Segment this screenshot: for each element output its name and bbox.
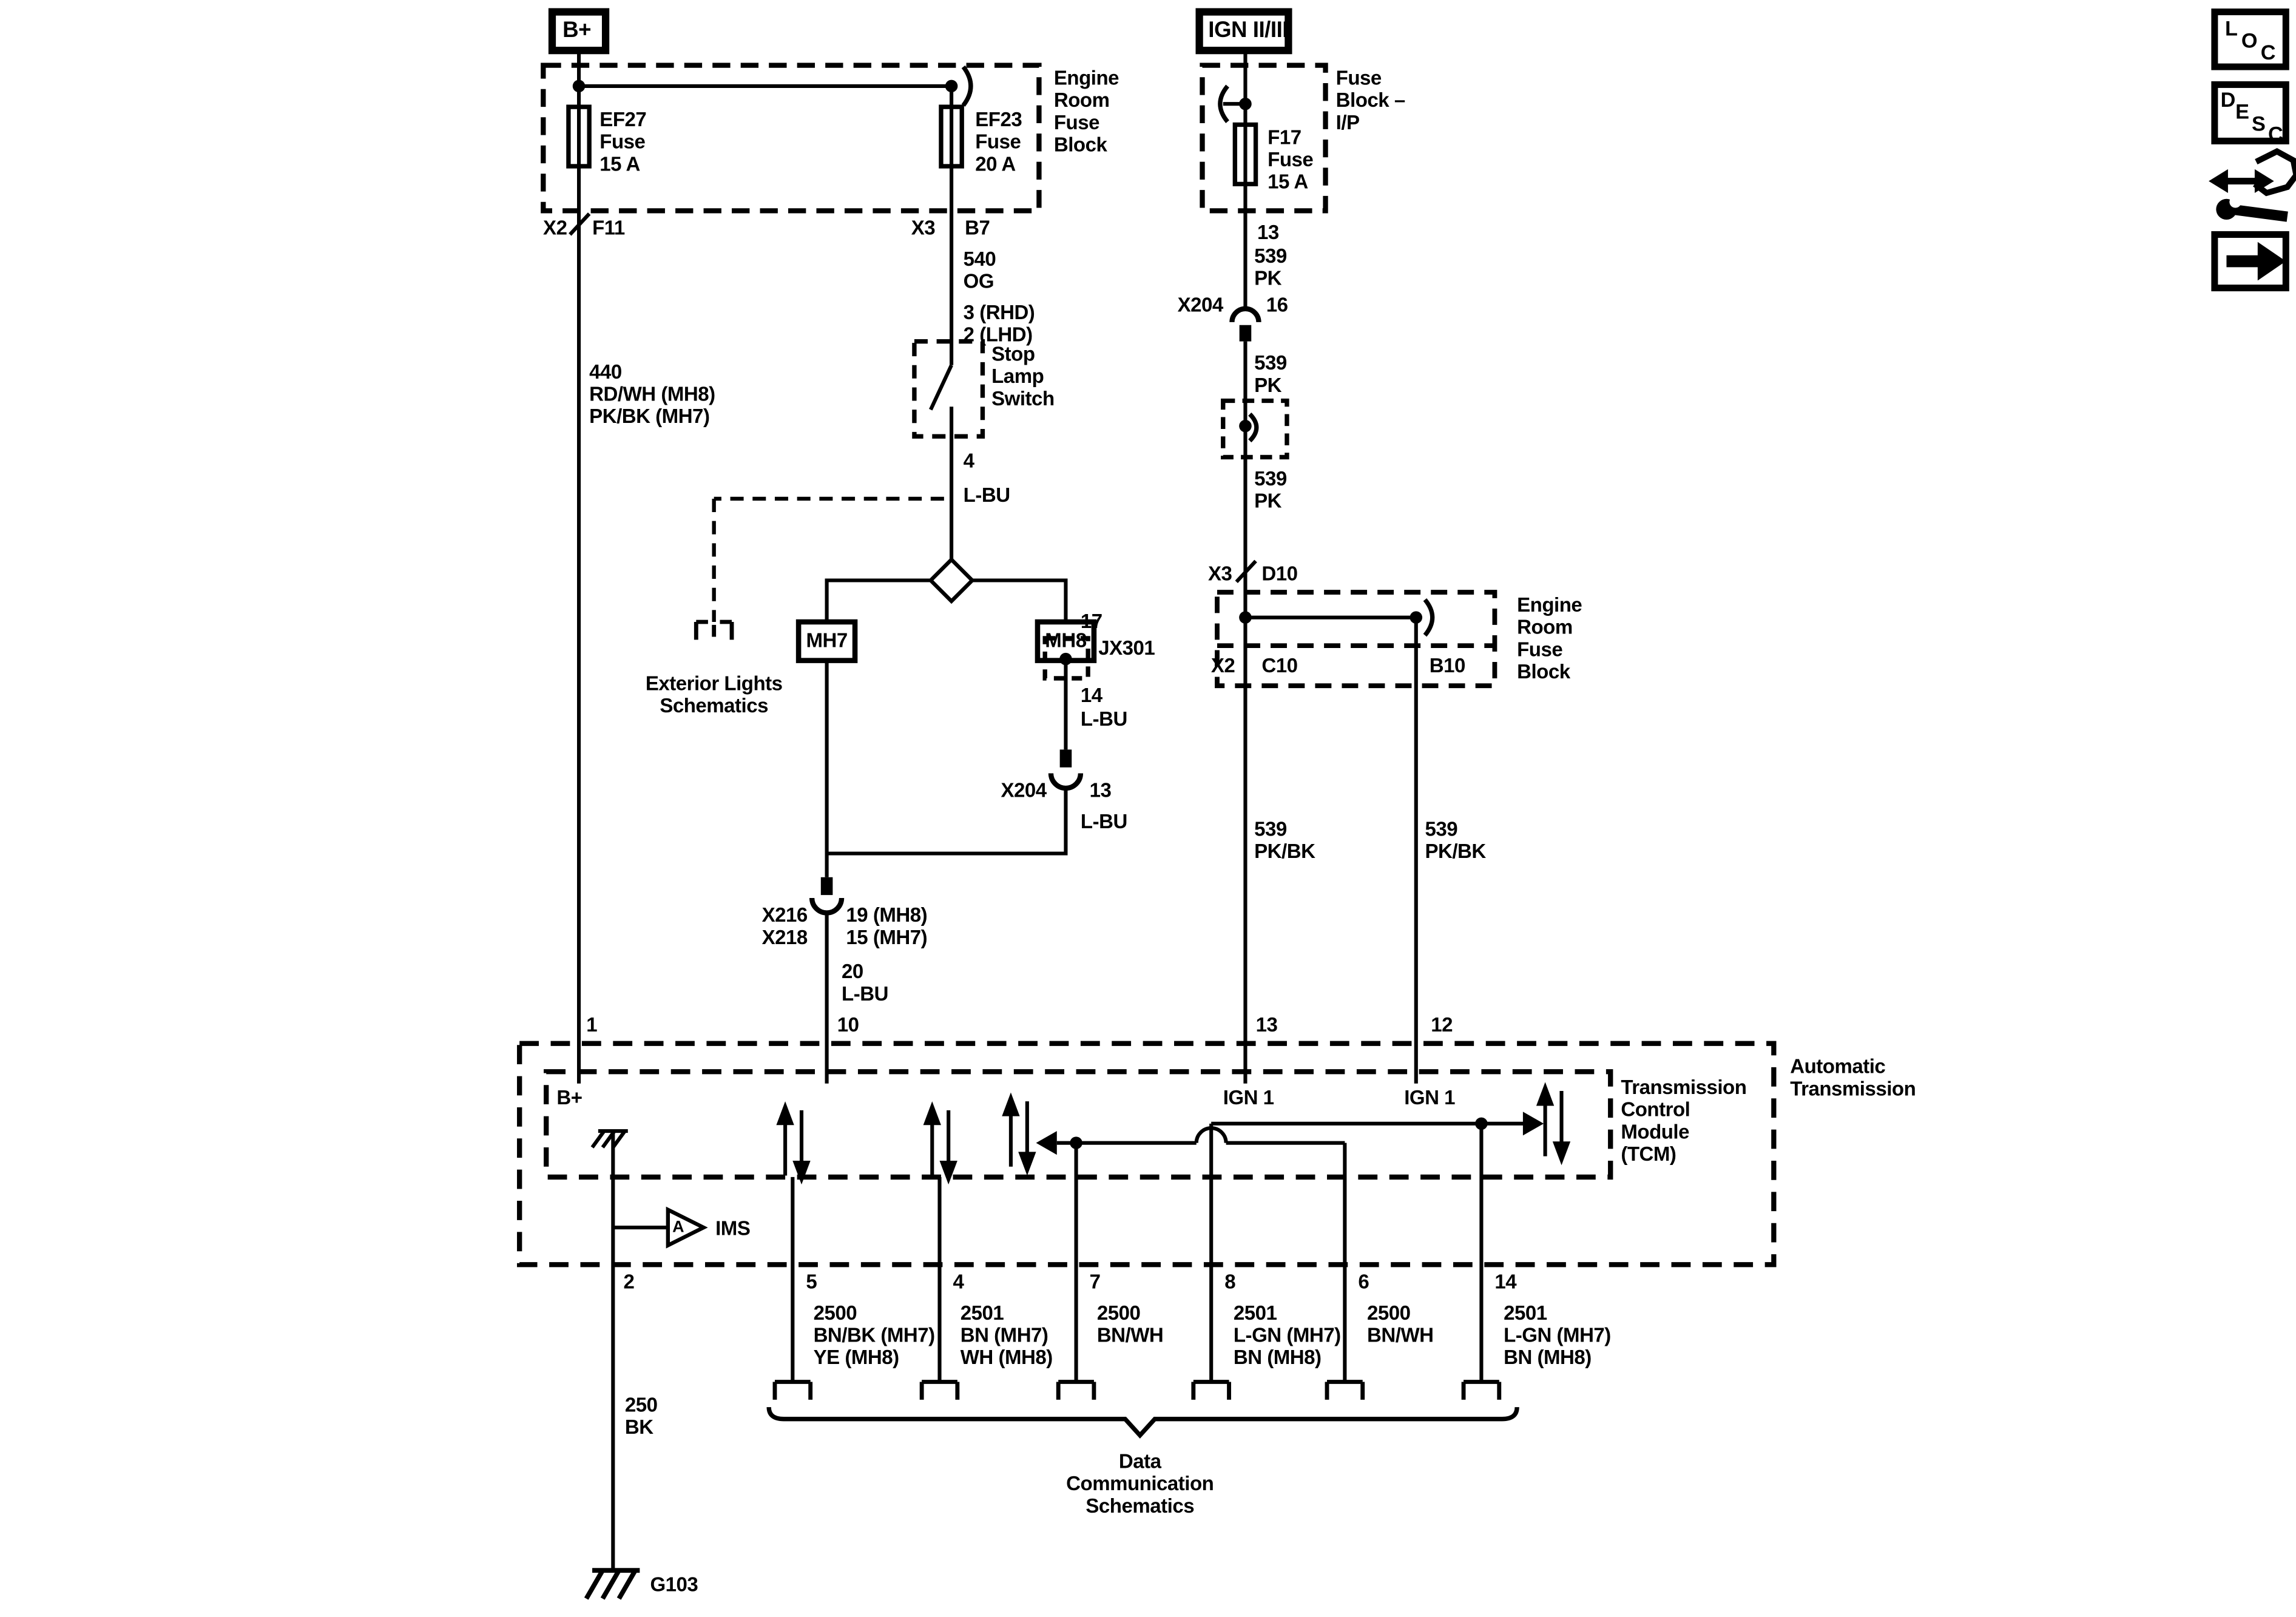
erfb-right-name: Engine Room Fuse Block — [1517, 594, 1582, 683]
loc-icon-letter-c: C — [2261, 40, 2276, 64]
ims-label: IMS — [715, 1217, 750, 1240]
wire-mh8-down — [827, 661, 1066, 854]
g103-ground-icon — [586, 1570, 640, 1598]
wire-20-lbu-label: 20 L-BU — [842, 960, 888, 1005]
junction-dots — [573, 80, 1488, 1149]
wire-color-4-label: 2501 BN (MH7) WH (MH8) — [961, 1301, 1053, 1368]
dashed-boxes — [519, 66, 1774, 1265]
wire-lbu-label-2: L-BU — [1081, 708, 1127, 731]
desc-icon-letter-c: C — [2268, 122, 2283, 146]
fuse-block-ip-name: Fuse Block – I/P — [1336, 67, 1405, 133]
wire-539pkbk-left-label: 539 PK/BK — [1254, 818, 1315, 862]
connector-x204-ign-label: X204 — [1178, 294, 1223, 316]
arrow-down-icon — [1018, 1152, 1036, 1175]
arrow-up-icon — [923, 1101, 941, 1125]
arrow-up-icon — [1536, 1082, 1554, 1106]
nav-icon-shapes — [2209, 12, 2296, 288]
pin-13-top-label: 13 — [1257, 221, 1279, 243]
pin-8-label: 8 — [1224, 1271, 1235, 1293]
stop-lamp-switch-label: Stop Lamp Switch — [991, 343, 1055, 410]
tcm-ign1-left-label: IGN 1 — [1223, 1087, 1274, 1109]
tcm-ign1-right-label: IGN 1 — [1404, 1087, 1455, 1109]
bplus-terminal-label: B+ — [562, 19, 591, 42]
bottom-terminals — [775, 1382, 1499, 1400]
connector-x3-label: X3 — [911, 217, 935, 239]
pin-10-label: 10 — [837, 1014, 859, 1036]
wire-539pk-label-2: 539 PK — [1254, 352, 1287, 396]
pin-4-switch-label: 4 — [964, 450, 974, 472]
stop-lamp-switch-box — [914, 342, 983, 437]
connector-x3-right-label: X3 — [1208, 562, 1232, 585]
arrow-up-icon — [1002, 1092, 1019, 1116]
pin-1-label: 1 — [586, 1014, 597, 1036]
pin-12-tcm-label: 12 — [1431, 1014, 1453, 1036]
loc-icon-letter-l: L — [2225, 16, 2238, 40]
jx301-label: JX301 — [1098, 636, 1155, 659]
mh7-label: MH7 — [806, 629, 847, 652]
fuses — [569, 107, 1256, 184]
pin-b10-label: B10 — [1430, 655, 1465, 677]
component-boxes — [552, 12, 1288, 661]
wire-color-8-label: 2501 L-GN (MH7) BN (MH8) — [1234, 1301, 1341, 1368]
wire-250bk-label: 250 BK — [625, 1394, 658, 1438]
pin-16-label: 16 — [1266, 294, 1288, 316]
wire-540og-label: 540 OG — [964, 248, 996, 292]
arrow-up-icon — [776, 1101, 794, 1125]
hook-b10 — [1425, 599, 1432, 635]
wire-539pkbk-right-label: 539 PK/BK — [1425, 818, 1485, 862]
arrow-nav-icon[interactable] — [2215, 235, 2286, 288]
g103-label: G103 — [650, 1573, 698, 1596]
pin-6-label: 6 — [1358, 1271, 1369, 1293]
arrow-down-icon — [792, 1161, 810, 1184]
connector-x216-x218-label: X216 X218 — [762, 904, 808, 948]
pin-13-tcm-label: 13 — [1256, 1014, 1278, 1036]
pin-b7-label: B7 — [965, 217, 990, 239]
tcm-ground-icon — [592, 1131, 628, 1147]
x204-13-arc — [1051, 774, 1081, 788]
arrow-right-icon — [1523, 1112, 1544, 1135]
tcm-bplus-pin-label: B+ — [556, 1087, 582, 1109]
erfb-top-name: Engine Room Fuse Block — [1054, 67, 1119, 156]
desc-icon-letter-d: D — [2221, 87, 2236, 111]
car-wrench-icon[interactable] — [2209, 152, 2296, 220]
x204-13-pin — [1060, 749, 1072, 767]
ims-gate-letter: A — [672, 1218, 684, 1236]
wire-440-label: 440 RD/WH (MH8) PK/BK (MH7) — [589, 360, 715, 427]
data-comm-schematics-label: Data Communication Schematics — [1066, 1450, 1214, 1517]
wire-color-6-label: 2500 BN/WH — [1367, 1301, 1433, 1346]
connector-x204-mid-label: X204 — [1001, 779, 1046, 802]
wire-539pk-label-1: 539 PK — [1254, 245, 1287, 289]
x204-16-pin — [1240, 325, 1252, 342]
fuse-ef23-label: EF23 Fuse 20 A — [975, 109, 1022, 175]
arrow-left-icon — [1036, 1131, 1057, 1155]
x204-16-arc — [1232, 309, 1258, 322]
fuse-ef27-label: EF27 Fuse 15 A — [599, 109, 646, 175]
loc-icon-letter-o: O — [2241, 28, 2258, 52]
pin-13-mid-label: 13 — [1090, 779, 1112, 802]
pin-4-label: 4 — [953, 1271, 964, 1293]
data-bus-lower — [1057, 1128, 1345, 1143]
splice-diamond — [931, 559, 972, 601]
pin-14-label: 14 — [1494, 1271, 1516, 1293]
arrow-down-icon — [1553, 1141, 1570, 1165]
pin-17-label: 17 — [1081, 610, 1102, 632]
automatic-transmission-label: Automatic Transmission — [1790, 1055, 1916, 1099]
pin-d10-label: D10 — [1261, 562, 1297, 585]
connector-x2-right-label: X2 — [1211, 655, 1235, 677]
pin-7-label: 7 — [1090, 1271, 1101, 1293]
arrow-down-icon — [940, 1161, 957, 1184]
fuse-f17-label: F17 Fuse 15 A — [1268, 126, 1313, 193]
wire-color-5-label: 2500 BN/BK (MH7) YE (MH8) — [814, 1301, 935, 1368]
wire-color-7-label: 2500 BN/WH — [1097, 1301, 1163, 1346]
exterior-lights-connector — [696, 622, 732, 640]
hook-ef23 — [964, 67, 971, 106]
x216-pin — [821, 877, 833, 895]
desc-icon-letter-s: S — [2252, 111, 2266, 135]
desc-icon-letter-e: E — [2235, 100, 2249, 123]
tcm-label: Transmission Control Module (TCM) — [1621, 1076, 1746, 1166]
pin-2-label: 2 — [623, 1271, 634, 1293]
exterior-lights-label: Exterior Lights Schematics — [646, 672, 783, 717]
wire-lbu-label-1: L-BU — [964, 484, 1010, 506]
exterior-lights-dashed-branch — [714, 499, 944, 622]
pins-19-15-label: 19 (MH8) 15 (MH7) — [846, 904, 927, 948]
wiring-diagram-page: B+ IGN II/III Engine Room Fuse Block EF2… — [0, 0, 2296, 1617]
wire-color-14-label: 2501 L-GN (MH7) BN (MH8) — [1504, 1301, 1611, 1368]
automatic-transmission-box — [519, 1044, 1774, 1264]
connector-x2-label: X2 — [543, 217, 567, 239]
mh8-label: MH8 — [1045, 629, 1086, 652]
wire-lbu-label-3: L-BU — [1081, 811, 1127, 833]
schematic-linework — [0, 0, 2296, 1617]
rhd-lhd-label: 3 (RHD) 2 (LHD) — [964, 302, 1035, 346]
pin-5-label: 5 — [806, 1271, 817, 1293]
pin-14-jx-label: 14 — [1081, 684, 1102, 707]
x216-arc — [812, 898, 842, 913]
pin-f11-label: F11 — [592, 217, 625, 239]
ign-terminal-label: IGN II/III — [1208, 19, 1288, 42]
pin-c10-label: C10 — [1261, 655, 1297, 677]
wire-539pk-label-3: 539 PK — [1254, 468, 1287, 512]
data-comm-brace — [769, 1407, 1517, 1435]
